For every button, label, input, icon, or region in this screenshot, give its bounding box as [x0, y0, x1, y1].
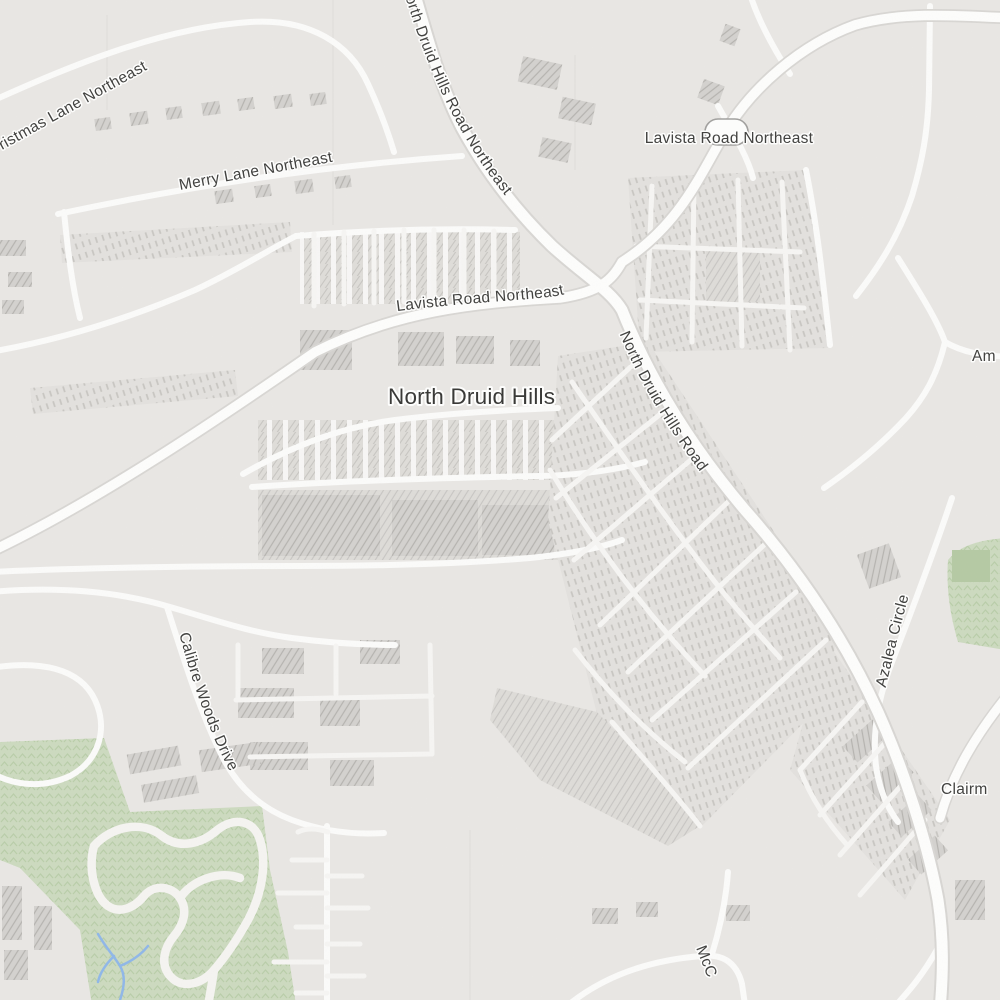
map-canvas[interactable]: ristmas Lane Northeast Merry Lane Northe… — [0, 0, 1000, 1000]
road-label-lavista-top: Lavista Road Northeast — [645, 130, 814, 147]
road-label-am: Am — [972, 348, 996, 365]
paper-grain-overlay — [0, 0, 1000, 1000]
road-label-clairmont: Clairm — [941, 781, 988, 798]
place-label-north-druid-hills[interactable]: North Druid Hills — [388, 384, 555, 409]
